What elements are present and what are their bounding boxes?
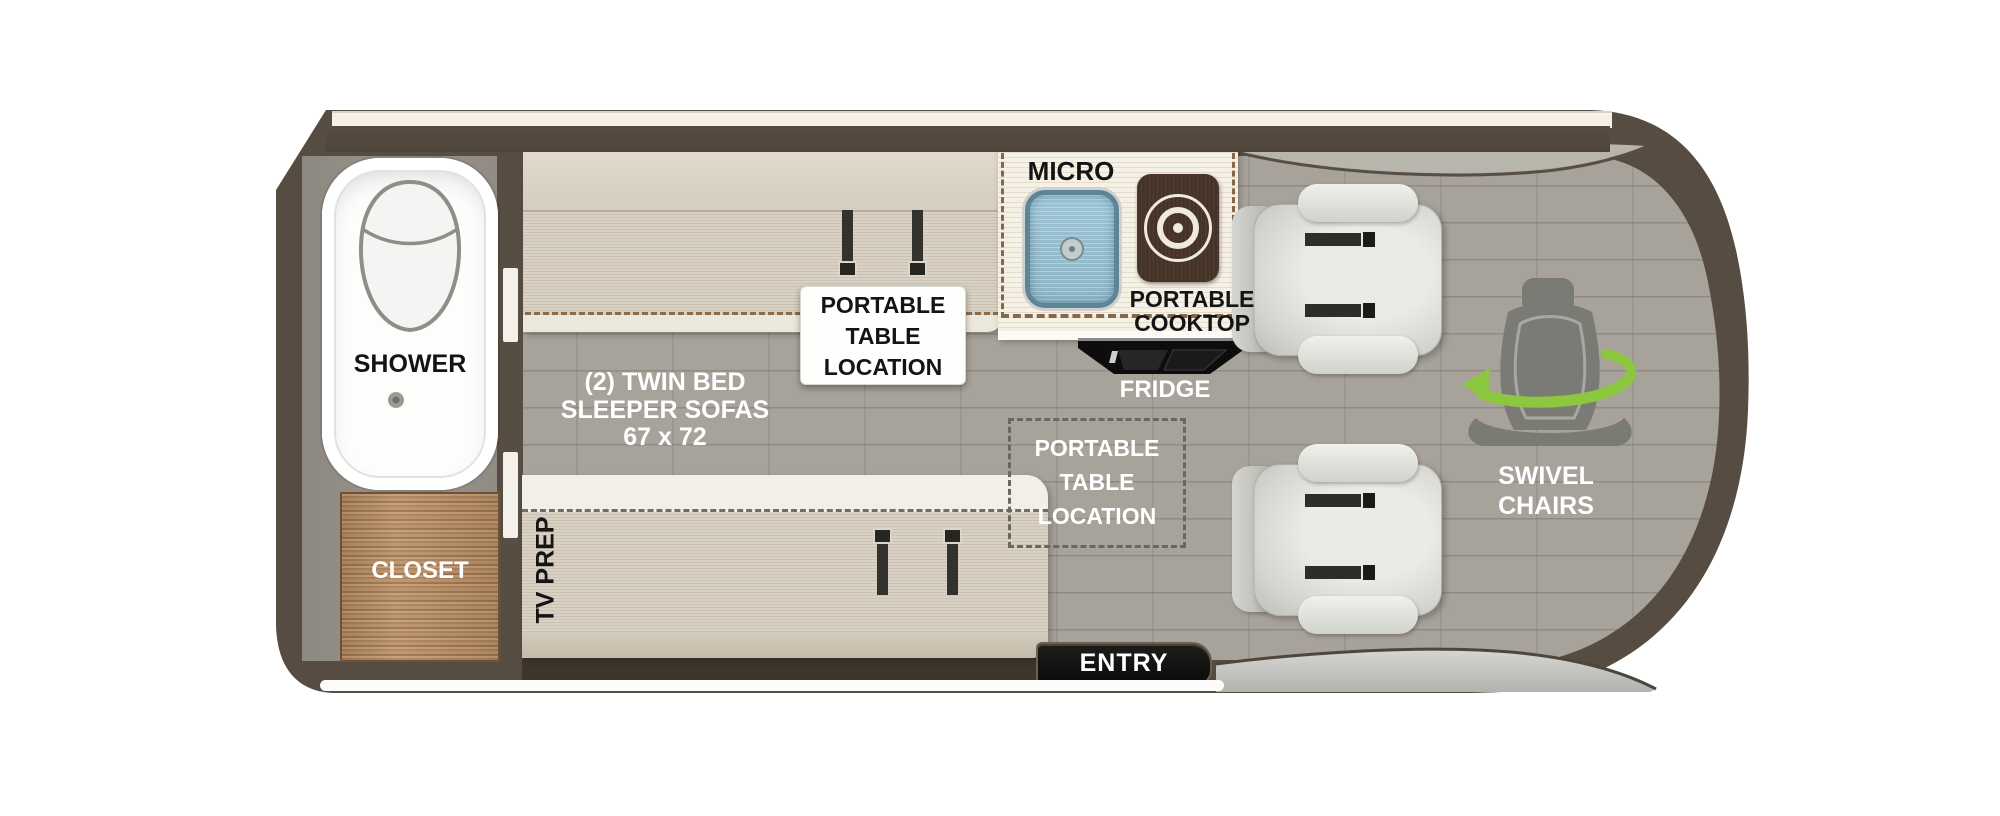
van-shell xyxy=(0,0,2000,816)
seatbelt-icon xyxy=(947,543,958,595)
portable-table-line3: LOCATION xyxy=(801,352,965,383)
sofa-bottom-front-edge xyxy=(522,632,1048,658)
seatbelt-icon xyxy=(1305,304,1361,317)
chair-seat xyxy=(1254,464,1442,616)
shower-drain-icon xyxy=(388,392,404,408)
sink-drain-icon xyxy=(1060,237,1084,261)
top-wall xyxy=(326,126,1610,152)
sleeper-sofas-label: (2) TWIN BED SLEEPER SOFAS 67 x 72 xyxy=(518,369,812,452)
sofa-bottom-fold-line xyxy=(522,475,1048,512)
chair-armrest xyxy=(1298,184,1418,222)
swivel-label-line1: SWIVEL xyxy=(1473,461,1619,491)
micro-label: MICRO xyxy=(1004,156,1138,187)
fridge-icon xyxy=(1076,334,1248,376)
sink-icon xyxy=(1025,190,1119,308)
portable-table-line1: PORTABLE xyxy=(1011,431,1183,465)
bathroom-door-opening xyxy=(503,268,518,342)
cooktop-icon xyxy=(1137,174,1219,282)
sofa-top-backrest xyxy=(523,148,1003,212)
seatbelt-icon xyxy=(877,543,888,595)
burner-center-icon xyxy=(1173,223,1183,233)
captain-chair-front xyxy=(1232,448,1442,630)
shower-label: SHOWER xyxy=(322,350,498,379)
swivel-chair-icon xyxy=(1458,268,1638,458)
fridge-label: FRIDGE xyxy=(1098,376,1232,404)
sofa-bottom xyxy=(522,475,1048,658)
seatbelt-icon xyxy=(1305,233,1361,246)
swivel-chairs-label: SWIVEL CHAIRS xyxy=(1473,461,1619,521)
portable-table-line3: LOCATION xyxy=(1011,499,1183,533)
sofas-label-line2: SLEEPER SOFAS xyxy=(518,397,812,425)
portable-table-line2: TABLE xyxy=(801,321,965,352)
tv-prep-label: TV PREP xyxy=(532,517,561,624)
seatbelt-icon xyxy=(1305,566,1361,579)
portable-table-line2: TABLE xyxy=(1011,465,1183,499)
chair-seat xyxy=(1254,204,1442,356)
portable-table-zone-rear: PORTABLE TABLE LOCATION xyxy=(1008,418,1186,548)
entry-label: ENTRY xyxy=(1036,642,1212,684)
cooktop-label-line2: COOKTOP xyxy=(1107,311,1277,335)
portable-table-line1: PORTABLE xyxy=(801,290,965,321)
swivel-label-line2: CHAIRS xyxy=(1473,491,1619,521)
floorplan-canvas: SHOWER CLOSET TV PREP (2) TWIN BED SLEEP… xyxy=(0,0,2000,816)
toilet-icon xyxy=(352,176,468,336)
chair-armrest xyxy=(1298,596,1418,634)
seatbelt-icon xyxy=(1305,494,1361,507)
sofas-label-line1: (2) TWIN BED xyxy=(518,369,812,397)
cooktop-label-line1: PORTABLE xyxy=(1107,287,1277,311)
seatbelt-icon xyxy=(912,210,923,262)
chair-armrest xyxy=(1298,444,1418,482)
chair-armrest xyxy=(1298,336,1418,374)
portable-cooktop-label: PORTABLE COOKTOP xyxy=(1107,287,1277,335)
seatbelt-icon xyxy=(842,210,853,262)
bathroom-door-opening xyxy=(503,452,518,538)
portable-table-label-front: PORTABLE TABLE LOCATION xyxy=(800,286,966,385)
sofas-label-line3: 67 x 72 xyxy=(518,424,812,452)
captain-chair-rear xyxy=(1232,188,1442,370)
closet-label: CLOSET xyxy=(340,557,500,585)
